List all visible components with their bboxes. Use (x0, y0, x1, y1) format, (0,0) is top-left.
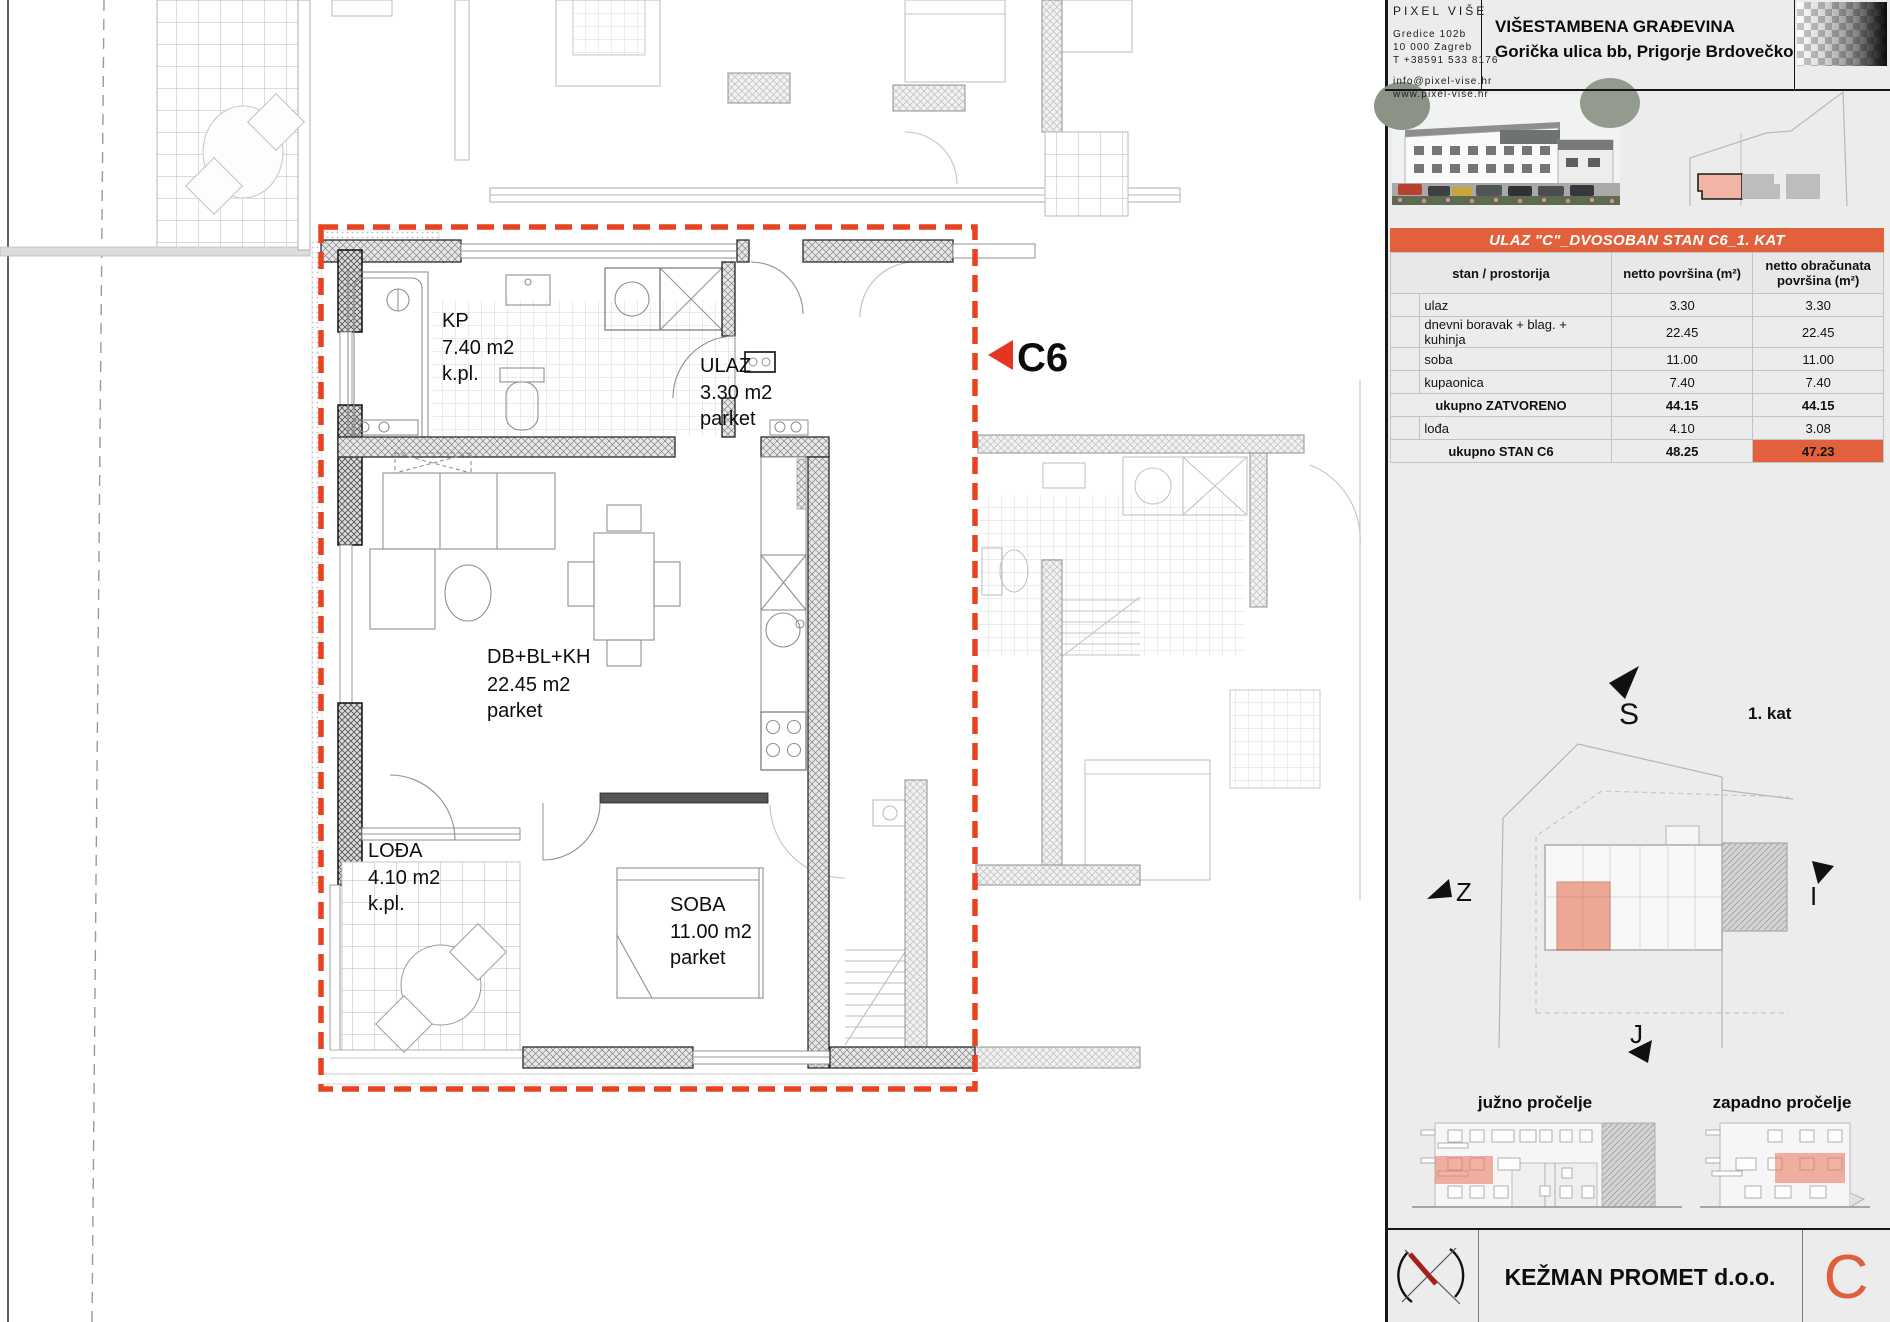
label-kp-area: 7.40 m2 (442, 337, 514, 359)
room-labels: KP 7.40 m2 k.pl. ULAZ 3.30 m2 parket DB+… (368, 310, 772, 969)
accounted-total-highlight: 47.23 (1753, 440, 1884, 463)
company-address1: Gredice 102b (1393, 28, 1479, 41)
area-table: stan / prostorija netto površina (m²) ne… (1390, 252, 1884, 463)
table-row: kupaonica 7.40 7.40 (1391, 371, 1884, 394)
col-net: netto površina (m²) (1611, 253, 1752, 294)
label-kp: KP (442, 310, 469, 332)
project-title: VIŠESTAMBENA GRAĐEVINA (1495, 14, 1790, 39)
label-ulaz-floor: parket (700, 408, 756, 430)
unit-banner-title: ULAZ "C"_DVOSOBAN STAN C6_1. KAT (1489, 232, 1785, 249)
label-soba-floor: parket (670, 947, 726, 969)
company-website: www.pixel-vise.hr (1393, 88, 1479, 101)
table-row: dnevni boravak + blag. + kuhinja 22.45 2… (1391, 317, 1884, 348)
bed (617, 868, 763, 998)
drawing-sheet: KP 7.40 m2 k.pl. ULAZ 3.30 m2 parket DB+… (0, 0, 1890, 1322)
c6-marker-arrow-icon (988, 340, 1013, 370)
label-lodja-floor: k.pl. (368, 893, 405, 915)
company-email: info@pixel-vise.hr (1393, 75, 1479, 88)
unit-banner: ULAZ "C"_DVOSOBAN STAN C6_1. KAT (1390, 228, 1884, 252)
company-address2: 10 000 Zagreb (1393, 41, 1479, 54)
developer-name: KEŽMAN PROMET d.o.o. (1478, 1230, 1802, 1322)
label-kp-floor: k.pl. (442, 363, 479, 385)
bathroom-fixtures (348, 268, 722, 452)
company-phone: T +38591 533 8176 (1393, 54, 1479, 67)
unit-c6 (312, 230, 1035, 1068)
col-room: stan / prostorija (1391, 253, 1612, 294)
table-row: soba 11.00 11.00 (1391, 348, 1884, 371)
c6-marker-label: C6 (1017, 336, 1068, 380)
label-soba-area: 11.00 m2 (670, 921, 752, 943)
label-lodja: LOĐA (368, 840, 423, 862)
stair-core (845, 262, 915, 1045)
context-structures (0, 0, 1360, 1322)
table-row: lođa 4.10 3.08 (1391, 417, 1884, 440)
project-address: Gorička ulica bb, Prigorje Brdovečko (1495, 39, 1790, 64)
c6-boundary: C6 (321, 227, 1068, 1089)
label-lodja-area: 4.10 m2 (368, 867, 440, 889)
table-row-total-closed: ukupno ZATVORENO 44.15 44.15 (1391, 394, 1884, 417)
context-stairs (1055, 597, 1140, 662)
kitchen (761, 457, 806, 770)
title-block: PIXEL VIŠE Gredice 102b 10 000 Zagreb T … (1385, 0, 1890, 91)
sidebar-panel (1385, 0, 1890, 1322)
living-furniture (370, 453, 680, 666)
footer-block: KEŽMAN PROMET d.o.o. C (1385, 1228, 1890, 1322)
label-db-area: 22.45 m2 (487, 674, 570, 696)
company-info: PIXEL VIŠE Gredice 102b 10 000 Zagreb T … (1393, 4, 1479, 101)
pixel-gradient-logo (1797, 2, 1887, 66)
table-row-total-unit: ukupno STAN C6 48.25 47.23 (1391, 440, 1884, 463)
label-soba: SOBA (670, 894, 726, 916)
label-db: DB+BL+KH (487, 646, 590, 668)
col-accounted: netto obračunata površina (m²) (1753, 253, 1884, 294)
label-ulaz-area: 3.30 m2 (700, 382, 772, 404)
company-name: PIXEL VIŠE (1393, 4, 1479, 18)
section-mark: C (1802, 1230, 1890, 1322)
project-title-block: VIŠESTAMBENA GRAĐEVINA Gorička ulica bb,… (1495, 14, 1790, 64)
table-row: ulaz 3.30 3.30 (1391, 294, 1884, 317)
area-table-header: stan / prostorija netto površina (m²) ne… (1391, 253, 1884, 294)
label-ulaz: ULAZ (700, 355, 751, 377)
label-db-floor: parket (487, 700, 543, 722)
